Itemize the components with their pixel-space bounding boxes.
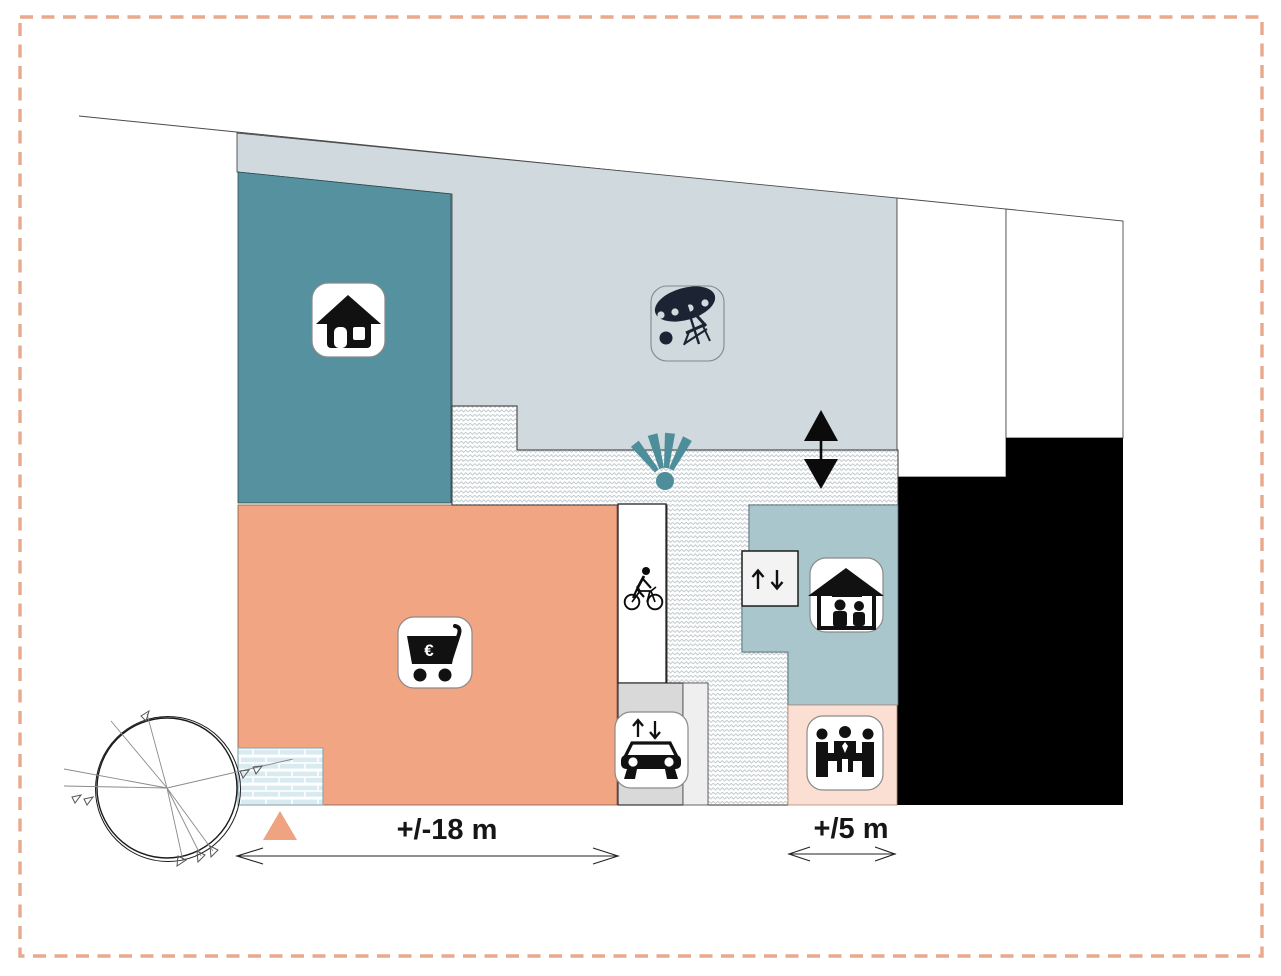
neighbour-parcel-1: [897, 198, 1006, 477]
main-width-label: +/-18 m: [397, 814, 498, 846]
house-icon: [312, 283, 385, 357]
euro-symbol: €: [424, 641, 434, 660]
neighbour-parcel-2: [1006, 209, 1123, 438]
beach-umbrella-icon: [651, 280, 724, 361]
brick-entrance: [238, 748, 323, 805]
site-plan-canvas: €: [0, 0, 1281, 976]
updown-arrows-box: [742, 551, 798, 606]
meeting-people-icon: [807, 716, 883, 790]
site-plan-drawing: €: [0, 0, 1281, 976]
shopping-cart-euro-icon: €: [398, 617, 472, 688]
side-width-label: +/5 m: [814, 813, 889, 845]
neighbour-building: [897, 438, 1123, 805]
elevator-people-icon: [808, 558, 884, 632]
car-lift-icon: [615, 712, 688, 788]
